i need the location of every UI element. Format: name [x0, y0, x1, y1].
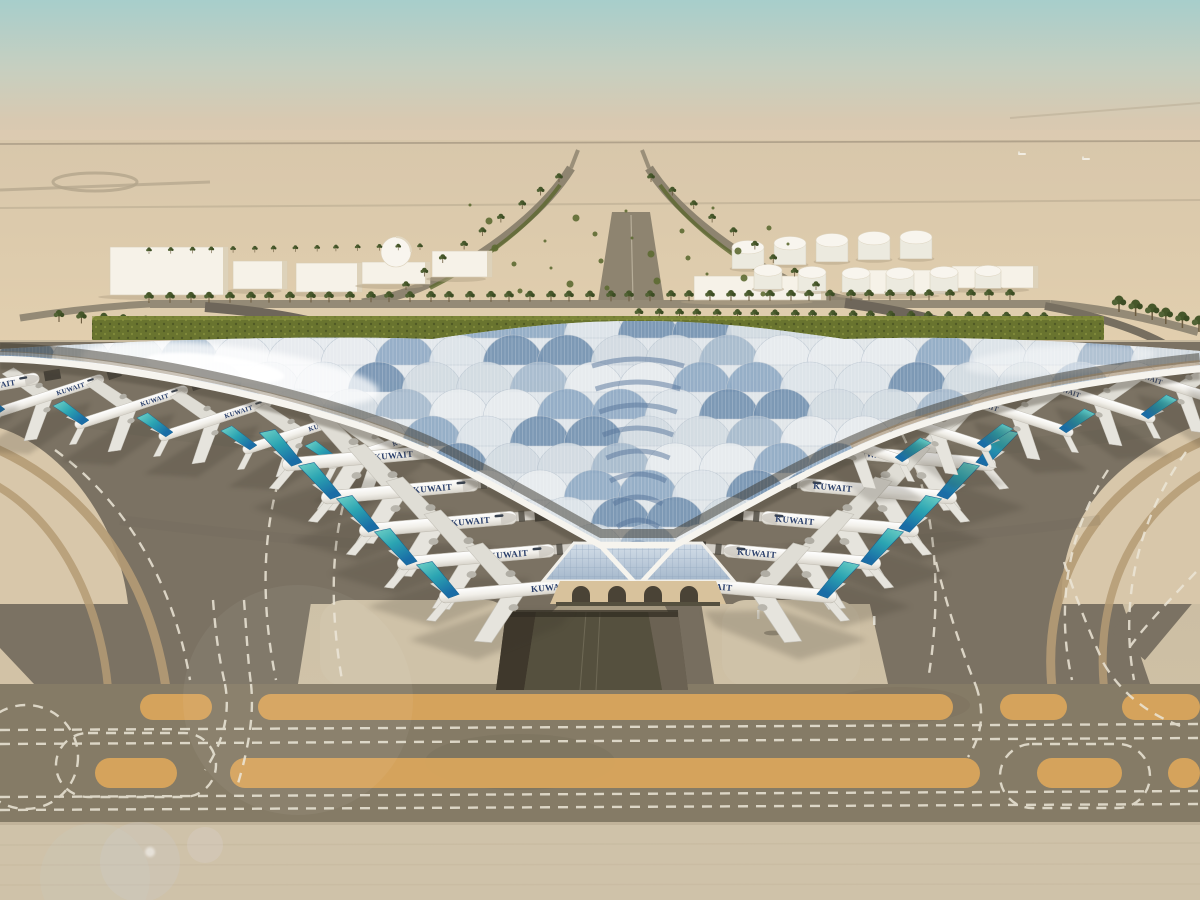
fuel-tank — [772, 236, 809, 267]
sky — [0, 0, 1200, 160]
shrub — [680, 229, 685, 234]
shrub — [767, 226, 772, 231]
fuel-tank — [752, 264, 784, 292]
fuel-tank — [928, 266, 960, 294]
hedge-highlight — [92, 316, 1104, 320]
shrub — [573, 215, 580, 222]
fuel-tank — [973, 265, 1003, 291]
shrub — [686, 256, 691, 261]
fuel-tank — [898, 230, 935, 261]
shrub — [469, 204, 472, 207]
fuel-tank — [814, 233, 851, 264]
foreground-concrete — [0, 825, 1200, 900]
shrub — [706, 273, 709, 276]
shrub — [486, 218, 493, 225]
orange-stripe — [1168, 758, 1200, 788]
striation — [0, 864, 1200, 865]
shrub — [605, 286, 610, 291]
shrub — [550, 267, 553, 270]
shrub — [593, 232, 598, 237]
shrub — [492, 245, 499, 252]
entrance-base-shadow — [556, 602, 720, 606]
striation — [0, 884, 1200, 885]
shrub — [567, 281, 574, 288]
shrub — [512, 262, 517, 267]
jet-bridge-joint — [556, 544, 563, 555]
orange-stripe — [95, 758, 177, 788]
shrub — [518, 289, 523, 294]
shrub — [625, 210, 628, 213]
shrub — [787, 243, 790, 246]
shrub — [648, 251, 655, 258]
shrub — [544, 240, 547, 243]
desert-background — [0, 103, 1200, 350]
sky-gradient — [0, 0, 1200, 150]
scene-svg: Aerial architectural rendering of Kuwait… — [0, 0, 1200, 900]
jet-bridge-joint — [715, 544, 722, 555]
shrub — [631, 237, 634, 240]
fuel-tank — [796, 266, 828, 294]
apex-entrance-structure — [550, 581, 726, 606]
shrub — [654, 278, 661, 285]
fuel-tank — [856, 231, 893, 262]
shrub — [735, 248, 742, 255]
background-building — [228, 261, 287, 294]
shrub — [712, 207, 715, 210]
orange-stripe — [1037, 758, 1122, 788]
shrub — [761, 292, 766, 297]
shrub — [741, 275, 748, 282]
orange-stripe — [1000, 694, 1067, 720]
shrub — [599, 259, 604, 264]
airport-rendering: Aerial architectural rendering of Kuwait… — [0, 0, 1200, 900]
